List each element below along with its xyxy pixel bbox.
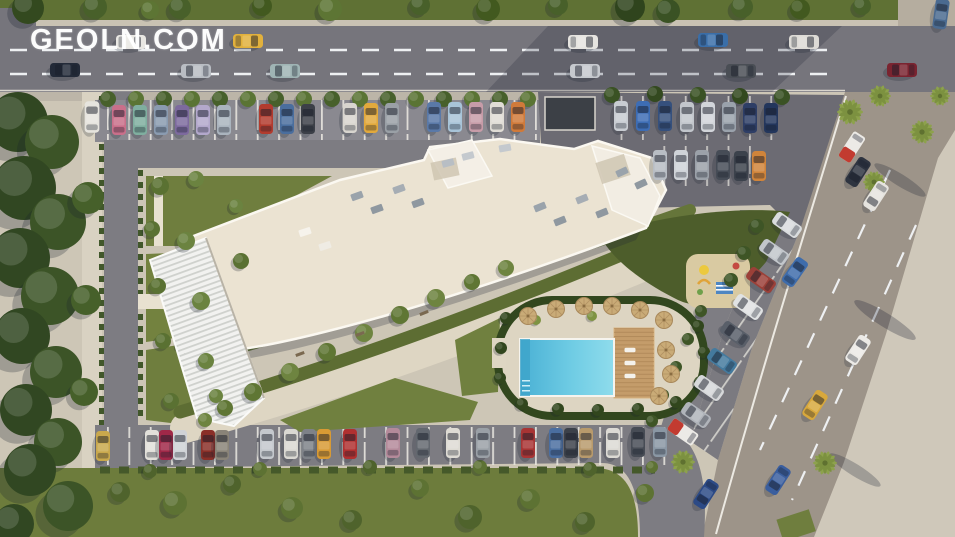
parasol xyxy=(604,298,621,315)
car xyxy=(789,35,819,49)
car xyxy=(175,105,189,135)
car xyxy=(752,151,766,181)
car xyxy=(631,427,645,457)
car xyxy=(606,428,620,458)
car xyxy=(215,430,229,460)
car xyxy=(476,428,490,458)
parasol xyxy=(520,308,537,325)
car xyxy=(280,104,294,134)
parasol xyxy=(632,302,649,319)
car xyxy=(173,430,187,460)
car xyxy=(317,429,331,459)
scene-canvas xyxy=(0,0,955,537)
car xyxy=(568,35,598,49)
car xyxy=(743,103,757,133)
shelter-canopy xyxy=(545,97,595,130)
car xyxy=(112,105,126,135)
car xyxy=(726,64,756,78)
car xyxy=(653,427,667,457)
car xyxy=(579,428,593,458)
car xyxy=(674,150,688,180)
sun-lounger xyxy=(625,374,636,378)
car xyxy=(385,103,399,133)
car xyxy=(96,431,110,461)
car xyxy=(469,102,483,132)
car xyxy=(680,102,694,132)
parasol xyxy=(548,301,565,318)
car xyxy=(85,101,100,133)
sun-lounger xyxy=(625,361,636,365)
car xyxy=(270,64,300,78)
car xyxy=(734,151,748,181)
parasol xyxy=(658,342,675,359)
car xyxy=(364,103,378,133)
parasol xyxy=(651,388,668,405)
car xyxy=(181,64,211,78)
car xyxy=(301,104,315,134)
parasol xyxy=(663,366,680,383)
car xyxy=(259,104,273,134)
car xyxy=(521,428,535,458)
car xyxy=(427,102,441,132)
parasol xyxy=(576,298,593,315)
car xyxy=(154,105,168,135)
car xyxy=(448,102,462,132)
car xyxy=(416,428,430,458)
car xyxy=(233,34,263,48)
playground-equipment xyxy=(699,265,709,275)
aerial-render: GEOLN.COM xyxy=(0,0,955,537)
swimming-pool xyxy=(520,339,614,396)
car xyxy=(701,102,715,132)
car xyxy=(217,105,231,135)
watermark-text: GEOLN.COM xyxy=(30,24,227,57)
car xyxy=(658,101,672,131)
car xyxy=(284,429,298,459)
car xyxy=(614,101,628,131)
car xyxy=(722,102,736,132)
car xyxy=(511,102,525,132)
car xyxy=(50,63,80,77)
car xyxy=(716,150,730,180)
parasol xyxy=(656,312,673,329)
car xyxy=(343,429,357,459)
car xyxy=(343,103,357,133)
car xyxy=(386,428,400,458)
car xyxy=(653,150,667,180)
car xyxy=(698,33,728,47)
car xyxy=(695,150,709,180)
car xyxy=(446,428,460,458)
car xyxy=(764,103,778,133)
car xyxy=(570,64,600,78)
car xyxy=(636,101,650,131)
bottom-lawn xyxy=(0,468,638,537)
car xyxy=(196,105,210,135)
car xyxy=(260,429,274,459)
sun-lounger xyxy=(625,348,636,352)
car xyxy=(133,105,147,135)
car xyxy=(490,102,504,132)
car xyxy=(887,63,917,77)
